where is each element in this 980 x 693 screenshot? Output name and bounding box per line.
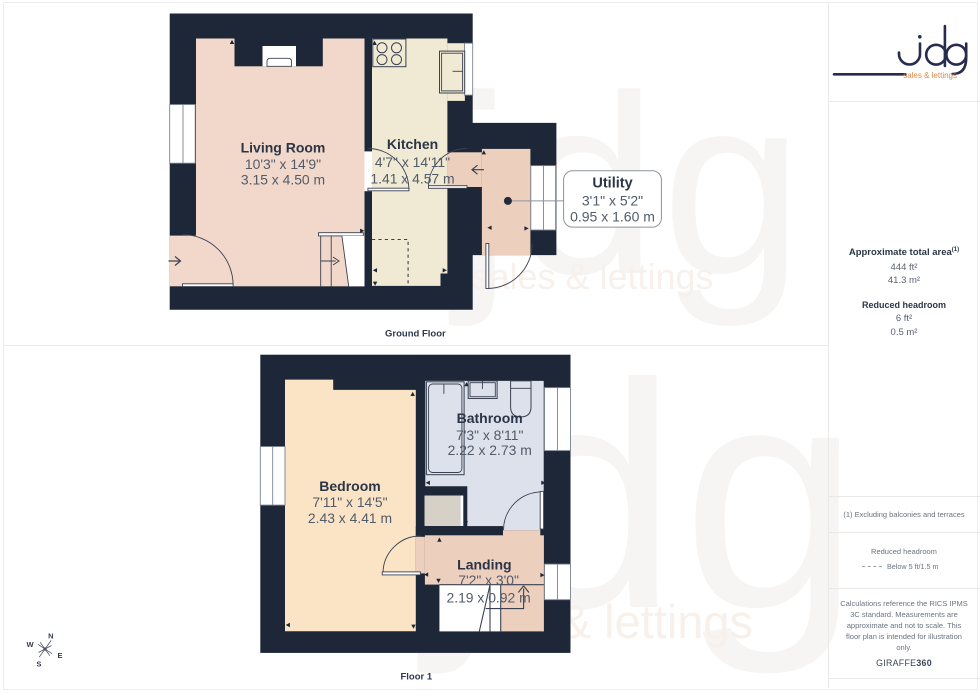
svg-text:7'3" x 8'11": 7'3" x 8'11" [456,427,523,443]
svg-text:Kitchen: Kitchen [387,136,438,152]
svg-text:Living Room: Living Room [241,139,326,155]
svg-text:10'3" x 14'9": 10'3" x 14'9" [245,156,321,172]
svg-text:Bedroom: Bedroom [319,478,380,494]
svg-text:W: W [26,640,34,649]
svg-text:Floor 1: Floor 1 [400,672,432,683]
svg-text:E: E [57,651,62,660]
svg-text:1.41 x 4.57 m: 1.41 x 4.57 m [370,170,454,186]
svg-text:sales & lettings: sales & lettings [903,71,957,80]
svg-text:Ground Floor: Ground Floor [385,329,446,340]
svg-text:2.22 x 2.73 m: 2.22 x 2.73 m [448,442,532,458]
svg-text:Utility: Utility [592,175,632,191]
svg-text:Bathroom: Bathroom [457,410,523,426]
svg-text:7'2" x 3'0": 7'2" x 3'0" [458,572,519,588]
svg-text:2.43 x 4.41 m: 2.43 x 4.41 m [308,510,392,526]
svg-text:Landing: Landing [457,557,511,573]
svg-text:4'7" x 14'11": 4'7" x 14'11" [375,154,450,170]
svg-text:2.19 x 0.92 m: 2.19 x 0.92 m [447,589,531,605]
svg-text:3.15 x 4.50 m: 3.15 x 4.50 m [241,172,325,188]
svg-text:N: N [48,632,53,641]
svg-text:7'11" x 14'5": 7'11" x 14'5" [312,494,387,510]
svg-text:S: S [36,660,41,669]
svg-text:0.95 x 1.60 m: 0.95 x 1.60 m [570,208,655,224]
svg-text:3'1" x 5'2": 3'1" x 5'2" [582,192,643,208]
